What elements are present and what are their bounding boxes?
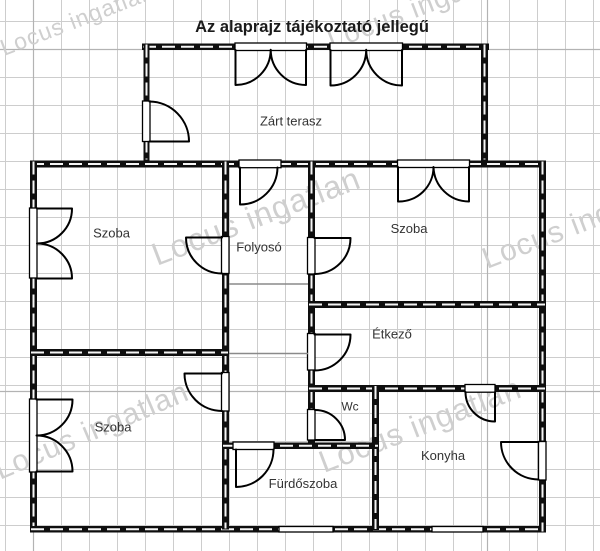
- svg-text:Szoba: Szoba: [391, 221, 429, 236]
- svg-text:Folyosó: Folyosó: [236, 240, 282, 255]
- svg-text:Szoba: Szoba: [95, 420, 133, 435]
- svg-text:Fürdőszoba: Fürdőszoba: [269, 476, 338, 491]
- svg-text:Konyha: Konyha: [421, 448, 466, 463]
- svg-text:Az alaprajz tájékoztató jelleg: Az alaprajz tájékoztató jellegű: [195, 18, 429, 36]
- svg-text:Wc: Wc: [341, 400, 358, 414]
- svg-text:Zárt terasz: Zárt terasz: [260, 114, 322, 129]
- svg-text:Szoba: Szoba: [93, 226, 131, 241]
- svg-text:Étkező: Étkező: [372, 327, 412, 342]
